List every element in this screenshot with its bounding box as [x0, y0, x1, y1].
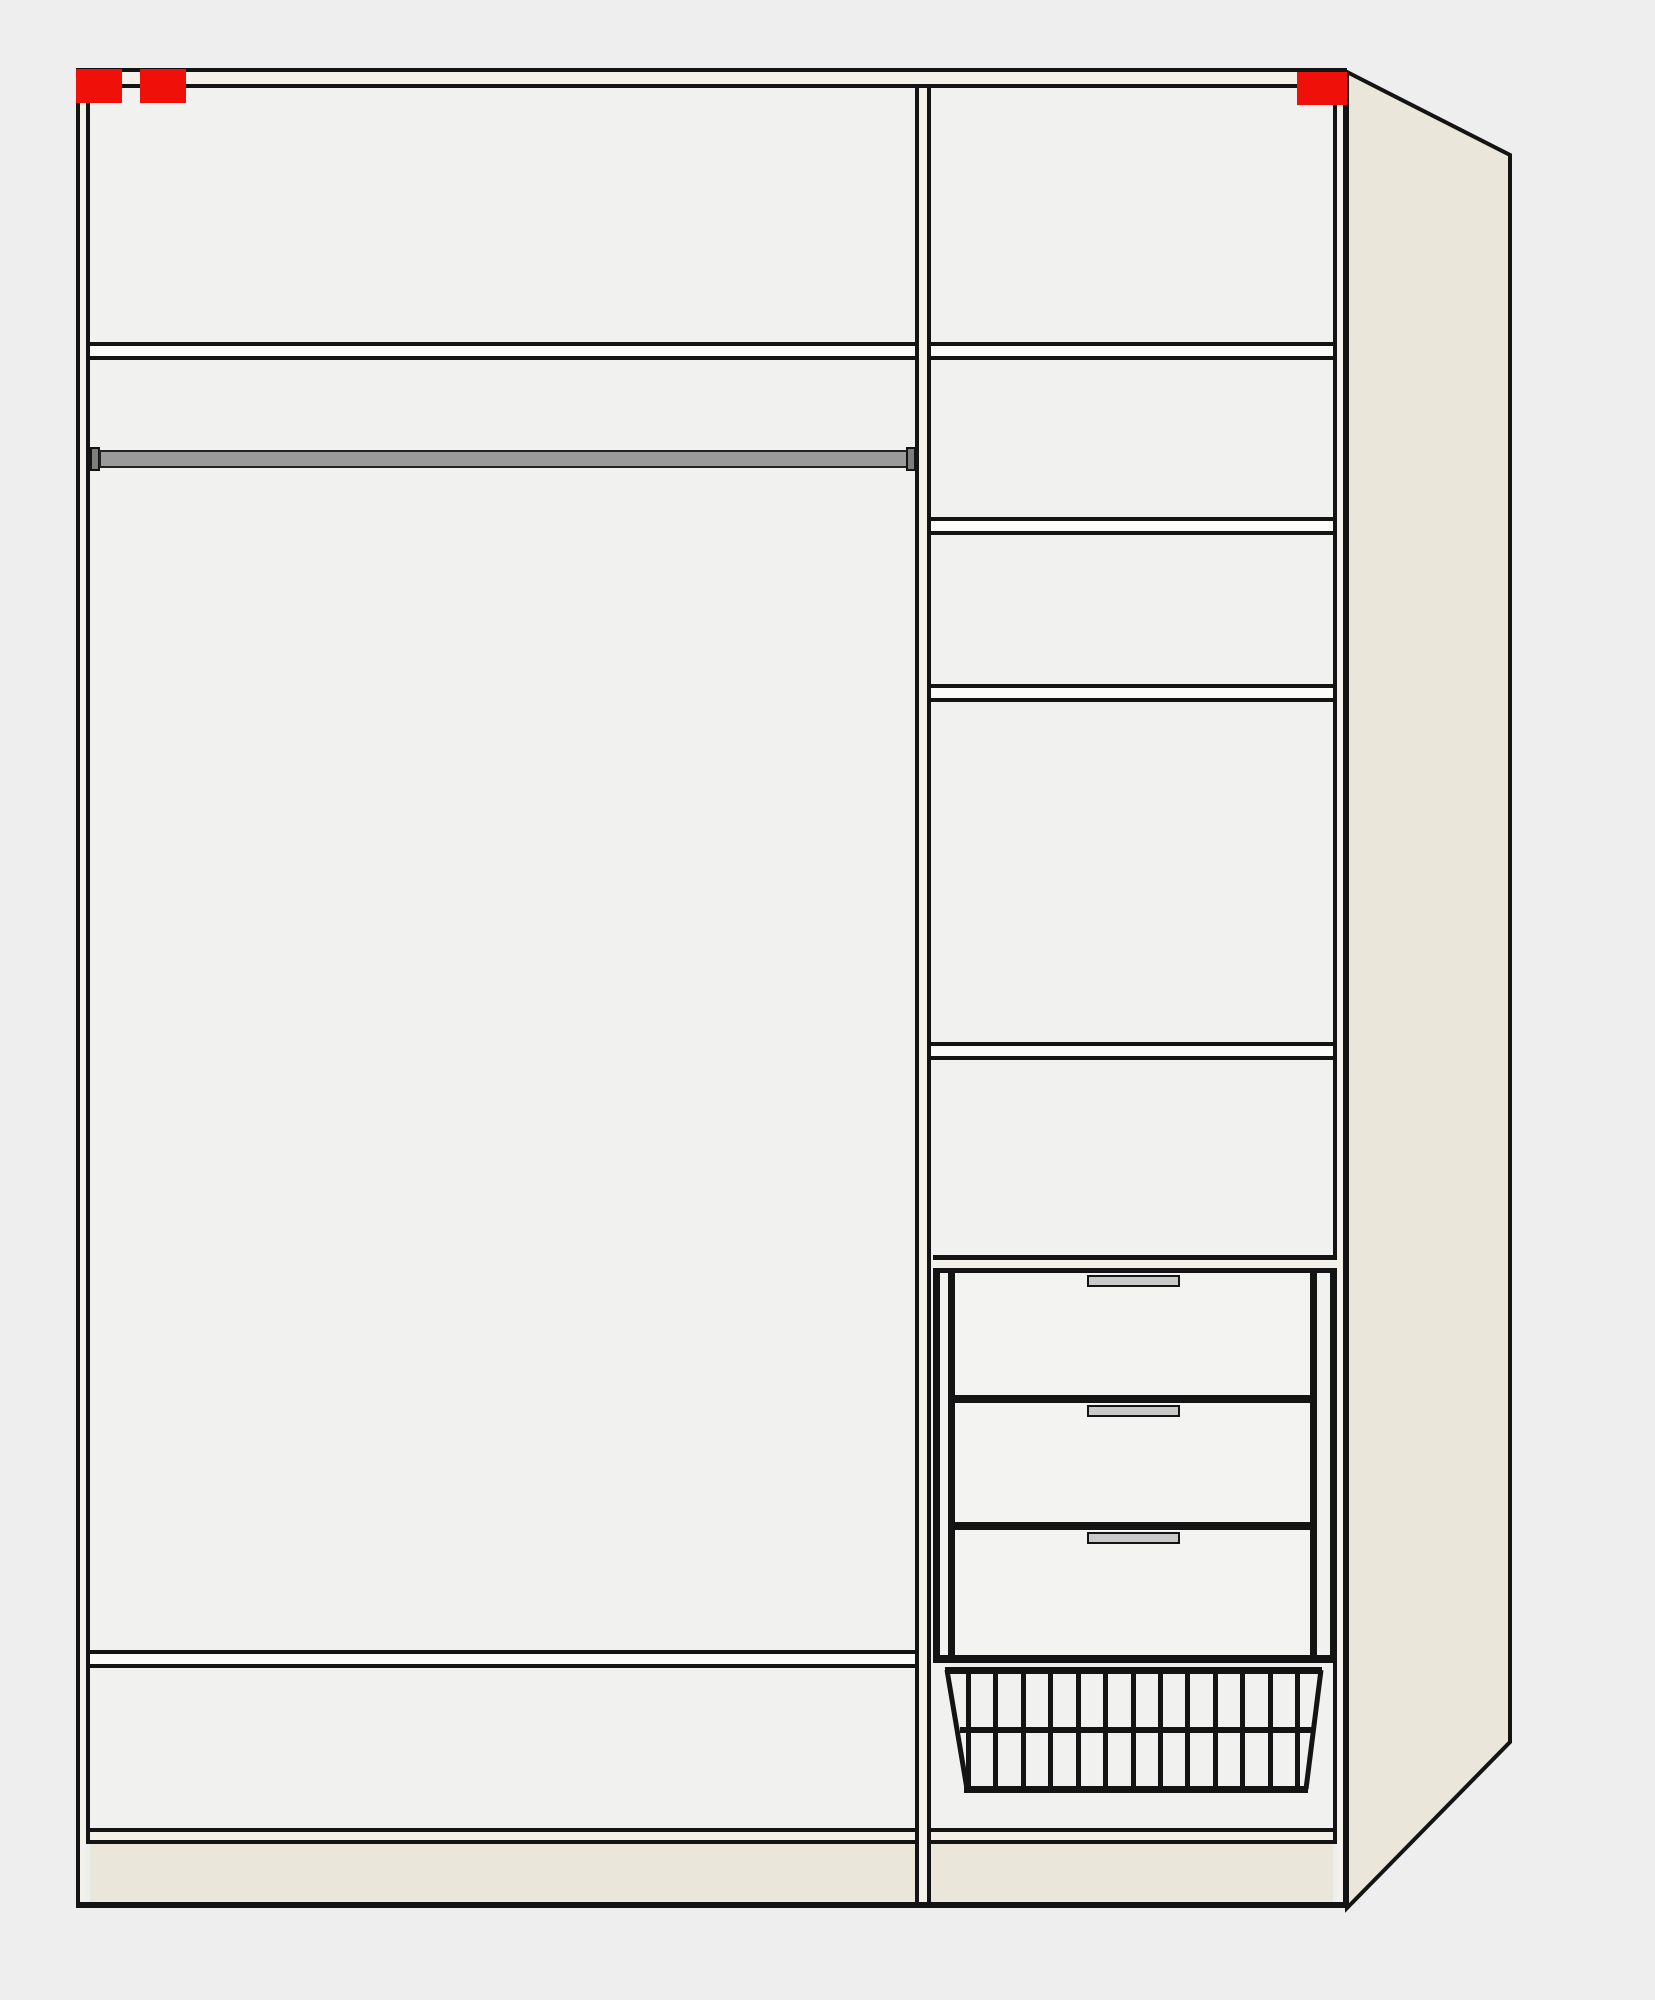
drawer-rail-right-inner: [1310, 1273, 1317, 1663]
basket-middle-wire: [960, 1727, 1312, 1733]
drawer-divider-1: [955, 1395, 1310, 1403]
side-panel: [1347, 72, 1510, 1908]
drawer-unit-bottom-line: [933, 1655, 1337, 1663]
drawer-handle-1: [1087, 1275, 1180, 1287]
plinth-panel: [90, 1844, 1333, 1902]
drawer-rail-left-core: [940, 1273, 948, 1663]
frame-bottom-outer-line: [76, 1902, 1347, 1908]
marker-red-right: [1297, 72, 1347, 105]
right-wall-core: [1337, 72, 1343, 1902]
hanging-rod: [99, 450, 908, 468]
divider-right-line: [927, 88, 931, 1902]
right-shelf-4: [931, 1042, 1333, 1060]
drawer-handle-2: [1087, 1405, 1180, 1417]
drawer-front-1: [955, 1273, 1310, 1395]
drawer-rail-right-core: [1317, 1273, 1330, 1663]
right-shelf-2: [931, 517, 1333, 535]
marker-red-left-2: [140, 69, 186, 103]
basket-bottom-rail: [964, 1786, 1308, 1793]
bottom-board-core: [90, 1832, 1333, 1840]
frame-right-outer-line: [1343, 68, 1347, 1908]
divider-plinth-core: [919, 1828, 927, 1902]
drawer-front-2: [955, 1403, 1310, 1522]
drawer-rail-right-outer: [1330, 1273, 1337, 1663]
drawer-rail-left-outer: [933, 1273, 940, 1663]
drawer-handle-3: [1087, 1532, 1180, 1544]
top-panel-core: [80, 72, 1343, 84]
wardrobe-diagram: [0, 0, 1655, 2000]
rod-right-cap: [906, 447, 916, 471]
divider-core: [919, 88, 927, 1902]
drawer-front-3: [955, 1530, 1310, 1655]
marker-red-left-1: [76, 69, 122, 103]
basket-top-rail: [945, 1667, 1322, 1674]
divider-plinth-right-line: [927, 1828, 931, 1902]
left-bottom-shelf: [90, 1650, 915, 1668]
drawer-rail-left-inner: [948, 1273, 955, 1663]
drawer-frame-top-core: [933, 1260, 1337, 1268]
left-top-shelf: [90, 342, 915, 360]
right-shelf-3: [931, 684, 1333, 702]
drawer-divider-2: [955, 1522, 1310, 1530]
right-shelf-1: [931, 342, 1333, 360]
